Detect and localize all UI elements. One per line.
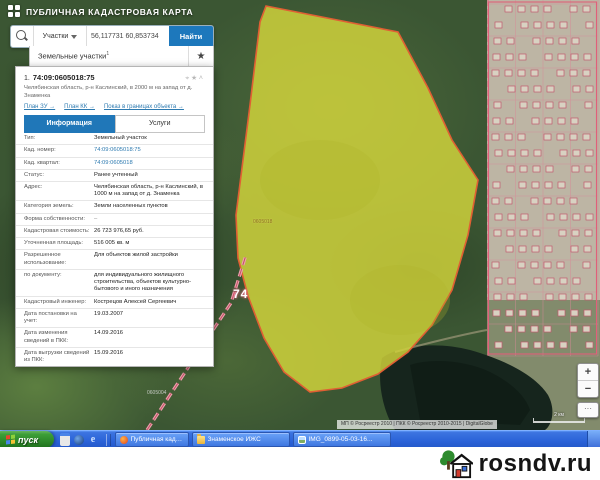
image-file-icon xyxy=(298,436,306,444)
search-category-dropdown[interactable]: Участки xyxy=(34,26,87,47)
pkk-logo-icon xyxy=(8,5,21,18)
table-row: Дата постановки на учет:19.03.2007 xyxy=(16,308,213,327)
table-row: Форма собственности:– xyxy=(16,213,213,225)
map-more-button[interactable]: ··· xyxy=(577,402,599,418)
desktop-screen: 74 0605018 0605004 МП © Росреестр 2010 |… xyxy=(0,0,600,480)
folder-icon xyxy=(197,436,205,444)
parcel-attributes-table: Тип:Земельный участок Кад. номер:74:09:0… xyxy=(16,133,213,366)
zoom-control: + − xyxy=(577,363,599,398)
taskbar: пуск e Публичная кадастр... Знаменское И… xyxy=(0,430,600,448)
search-bar: Участки Найти xyxy=(10,25,214,48)
results-header-row[interactable]: Земельные участки1 ★ xyxy=(29,46,214,67)
plan-zu-link[interactable]: План ЗУ → xyxy=(24,104,55,110)
plan-kk-link[interactable]: План КК → xyxy=(64,104,95,110)
zoom-out-button[interactable]: − xyxy=(578,380,598,397)
show-desktop-icon[interactable] xyxy=(60,433,70,446)
task-button-folder[interactable]: Знаменское ИЖС xyxy=(192,432,290,447)
star-icon: ★ xyxy=(191,75,199,82)
parcel-number-label: 0605018 xyxy=(253,219,272,225)
table-row: Уточненная площадь:516 005 кв. м xyxy=(16,237,213,249)
result-cadastral-number: 74:09:0605018:75 xyxy=(33,73,185,82)
find-button[interactable]: Найти xyxy=(169,26,213,47)
table-row: Кад. номер:74:09:0605018:75 xyxy=(16,144,213,156)
zoom-in-button[interactable]: + xyxy=(578,364,598,380)
table-row: Кадастровый инженер:Кострецов Алексей Се… xyxy=(16,296,213,308)
results-title: Земельные участки1 xyxy=(30,51,188,61)
app-title: ПУБЛИЧНАЯ КАДАСТРОВАЯ КАРТА xyxy=(26,7,193,17)
table-row: Категория земель:Земли населенных пункто… xyxy=(16,200,213,212)
quick-launch: e xyxy=(54,433,104,446)
app-header: ПУБЛИЧНАЯ КАДАСТРОВАЯ КАРТА xyxy=(8,5,193,18)
firefox-icon xyxy=(120,436,128,444)
table-row: Разрешенное использование:Для объектов ж… xyxy=(16,249,213,268)
internet-explorer-icon[interactable]: e xyxy=(88,435,98,445)
search-input[interactable] xyxy=(87,33,169,40)
rosndv-logo-icon xyxy=(439,448,473,480)
browser-icon[interactable] xyxy=(74,435,84,445)
bottom-strip: rosndv.ru xyxy=(0,447,600,480)
tab-information[interactable]: Информация xyxy=(24,115,115,133)
result-item-number: 1. xyxy=(24,75,30,82)
collapse-icon: ˄ xyxy=(199,75,205,82)
parcel-info-panel: 1. 74:09:0605018:75 ⌖★˄ Челябинская обла… xyxy=(15,66,214,367)
table-row: Кадастровая стоимость:26 723 976,65 руб. xyxy=(16,225,213,237)
cad-quarter-link[interactable]: 74:09:0605018 xyxy=(94,160,205,167)
cad-number-link[interactable]: 74:09:0605018:75 xyxy=(94,147,205,154)
results-count: 1 xyxy=(106,51,109,57)
search-icon[interactable] xyxy=(11,26,34,47)
result-address: Челябинская область, р-н Каслинский, в 2… xyxy=(24,85,205,100)
task-button-browser[interactable]: Публичная кадастр... xyxy=(115,432,189,447)
watermark-text: rosndv.ru xyxy=(479,450,592,478)
region-code-label: 74 xyxy=(233,287,248,301)
map-canvas[interactable]: 74 0605018 0605004 МП © Росреестр 2010 |… xyxy=(0,0,600,430)
table-row: Статус:Ранее учтенный xyxy=(16,169,213,181)
table-row: Адрес:Челябинская область, р-н Каслински… xyxy=(16,181,213,200)
system-tray[interactable] xyxy=(587,431,600,448)
favorite-star-icon[interactable]: ★ xyxy=(188,46,213,66)
table-row: Тип:Земельный участок xyxy=(16,133,213,144)
map-attribution: МП © Росреестр 2010 | ПКК © Росреестр 20… xyxy=(337,420,497,429)
windows-flag-icon xyxy=(6,435,15,445)
taskbar-separator xyxy=(106,434,111,446)
panel-action-icons[interactable]: ⌖★˄ xyxy=(185,75,205,83)
search-category-label: Участки xyxy=(43,33,69,40)
table-row: Дата изменения сведений в ПКК:14.09.2016 xyxy=(16,327,213,346)
table-row: Дата выгрузки сведений из ПКК:15.09.2016 xyxy=(16,347,213,366)
tab-services[interactable]: Услуги xyxy=(115,115,206,133)
quarter-number-label: 0605004 xyxy=(147,390,166,396)
table-row: Кад. квартал:74:09:0605018 xyxy=(16,157,213,169)
scale-line xyxy=(533,418,585,423)
show-in-bounds-link[interactable]: Показ в границах объекта → xyxy=(104,104,184,110)
table-row: по документу:для индивидуального жилищно… xyxy=(16,269,213,296)
chevron-down-icon xyxy=(71,35,77,39)
task-button-image[interactable]: IMG_0899-05-03-16... xyxy=(293,432,391,447)
start-button[interactable]: пуск xyxy=(0,431,54,448)
